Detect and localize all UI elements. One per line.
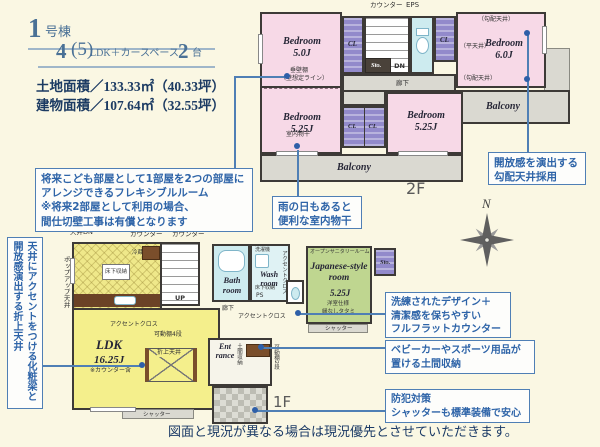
connector-counter-dot: [295, 310, 301, 316]
eps-label: EPS: [406, 2, 419, 10]
connector-drying-dot: [294, 143, 300, 149]
storage-2f: Sto.: [365, 58, 391, 73]
roof-outline: [544, 48, 570, 92]
callout-indoor-drying: 雨の日もあると 便利な室内物干: [272, 196, 362, 229]
toilet-icon: [416, 28, 429, 36]
window-1f-left: [70, 258, 75, 284]
callout-doma-storage: ベビーカーやスポーツ用品が 置ける土間収納: [385, 340, 535, 374]
counter-label-2f: カウンター: [370, 2, 403, 9]
compass-icon: N: [452, 192, 522, 272]
window-1f-bottom: [90, 407, 136, 412]
wash-room: 洗濯機 Wash room 床下収納 PS アクセントクロス: [250, 244, 290, 302]
ps-label: PS: [256, 293, 263, 300]
shutter-label-2: シャッター: [325, 326, 353, 332]
toilet-bowl-icon: [416, 37, 429, 54]
toilet-room-2f: [410, 16, 434, 74]
wall-assumption-line: [264, 88, 338, 89]
ldk-name: LDK: [96, 338, 122, 353]
folded-ceiling-box: 折上天井: [145, 348, 197, 382]
hallway-2f-ext: [342, 92, 386, 106]
shelf2-label: 可動棚2段: [273, 344, 279, 378]
japanese-room-size: 5.25J: [330, 288, 350, 298]
connector-drying-v: [297, 150, 299, 196]
balcony-right-label: Balcony: [486, 101, 520, 113]
connector-flexible-dot: [284, 73, 290, 79]
compass-n-label: N: [481, 196, 492, 211]
connector-doma-h: [261, 347, 386, 349]
hallway-1f-label: 廊下: [222, 306, 234, 313]
laundry-label: 洗濯機: [255, 248, 270, 254]
balcony-bottom-label: Balcony: [337, 162, 371, 174]
under-floor-storage-label: 床下収納: [105, 269, 127, 275]
bath-room: Bath room: [212, 244, 250, 302]
doma-storage-label: 土間収納: [236, 343, 242, 373]
connector-flexible-h: [234, 76, 288, 78]
plan-text: LDK＋カースペース: [90, 48, 179, 59]
washing-machine-icon: [255, 254, 269, 268]
closet-cl-a: CL: [342, 16, 364, 74]
floor1-plan: ポップアップ天井 冷蔵庫 床下収納 アクセントクロス LDK 16.25J ※カ…: [62, 240, 406, 432]
connector-sloped-dot-a: [524, 30, 530, 36]
shelf4-label: 可動棚4段: [154, 332, 182, 339]
callout-folded-ceiling: 天井にアクセントをつける化粧梁と 開放感演出する折上天井: [7, 237, 43, 409]
connector-sloped-dot-b: [524, 76, 530, 82]
jp-spec1-label: 洋室仕様: [327, 301, 349, 307]
closet-cl-c: CL: [344, 108, 365, 146]
connector-folded-h: [40, 365, 142, 367]
flat-ceiling-label: （平天井）: [460, 44, 490, 51]
stairs-dn-label: DN: [394, 63, 405, 70]
closet-cl-pair: CL CL: [342, 106, 386, 148]
connector-security-h: [255, 410, 386, 412]
bedroom-5-0j-name: Bedroom5.0J: [272, 36, 332, 59]
entrance-label: Ent rance: [212, 342, 238, 360]
hanging-wall-label: 垂壁棚: [290, 68, 308, 75]
stairs-1f: UP: [160, 242, 200, 306]
connector-doma-dot: [258, 344, 264, 350]
closet-cl-b: CL: [434, 16, 456, 62]
sloped-ceiling-label-bottom: （勾配天井）: [460, 76, 496, 83]
building-suffix: 号棟: [45, 25, 71, 39]
closet-cl-d-label: CL: [369, 123, 377, 130]
window-2f-right: [542, 26, 547, 54]
callout-security-shutter: 防犯対策 シャッターも標準装備で安心: [385, 389, 530, 423]
connector-counter-h: [298, 313, 386, 315]
accent-cloth2-label: アクセントクロス: [238, 314, 286, 321]
closet-cl-a-label: CL: [348, 40, 357, 48]
storage-1f: Sto.: [374, 248, 396, 276]
closet-cl-b-label: CL: [440, 36, 449, 44]
connector-security-dot: [252, 407, 258, 413]
connector-folded-dot: [139, 362, 145, 368]
toilet-1f-icon: [291, 287, 300, 300]
counter-label-1: カウンター: [130, 231, 163, 238]
toilet-room-1f: [286, 280, 304, 304]
plan-number-2: 2: [178, 40, 189, 63]
indoor-drying-label: 室内物干: [286, 132, 310, 139]
header-block: 1 号棟 4 (5) LDK＋カースペース 2 台 土地面積／133.33㎡（4…: [28, 12, 248, 122]
bath-room-label: Bath room: [218, 276, 246, 296]
connector-flexible-v: [234, 76, 236, 170]
callout-flexible-room: 将来こども部屋として1部屋を2つの部屋に アレンジできるフレキシブルルーム ※将…: [35, 168, 253, 232]
balcony-bottom: Balcony: [260, 154, 463, 182]
callout-flat-counter: 洗練されたデザイン＋ 清潔感を保ちやすい フルフラットカウンター: [385, 292, 511, 338]
shutter-band-2: シャッター: [308, 324, 368, 333]
header-rule-2: [38, 66, 215, 68]
plan-suffix: 台: [192, 48, 202, 59]
storage-1f-label: Sto.: [380, 259, 390, 266]
window-2f-left: [258, 34, 263, 64]
under-floor-storage: 床下収納: [102, 264, 130, 280]
disclaimer-text: 図面と現況が異なる場合は現況優先とさせていただきます。: [168, 426, 518, 440]
popup-ceiling-label: ポップアップ天井: [62, 256, 69, 340]
bedroom-5-25j-right-name: Bedroom5.25J: [396, 110, 456, 133]
entrance-tile: [212, 386, 268, 424]
hallway-2f-label: 廊下: [396, 80, 409, 87]
plan-number: 4: [56, 40, 67, 63]
ldk-note: ※カウンター含: [90, 368, 131, 375]
floorplan-flyer: 1 号棟 4 (5) LDK＋カースペース 2 台 土地面積／133.33㎡（4…: [0, 0, 600, 447]
window-2f-bottom-b: [398, 151, 448, 156]
counter-label-2: カウンター: [172, 231, 205, 238]
folded-ceiling-box-label: 折上天井: [157, 350, 181, 357]
kitchen-sink-icon: [114, 296, 136, 305]
bedroom-5-25j-left: Bedroom5.25J: [260, 86, 342, 154]
floor-storage2-label: 床下収納: [255, 286, 275, 292]
closet-cl-d: CL: [365, 108, 385, 146]
shutter-label-1: シャッター: [143, 412, 171, 418]
bathtub-icon: [218, 250, 245, 272]
storage-2f-label: Sto.: [371, 62, 381, 69]
callout-sloped-ceiling: 開放感を演出する 勾配天井採用: [488, 152, 586, 185]
open-sanitary-label: オープンサニタリールーム: [310, 250, 370, 256]
floor2-label: 2F: [406, 180, 425, 198]
hallway-2f: 廊下: [342, 74, 456, 92]
bedroom-6-0j: （勾配天井） Bedroom6.0J （平天井） （勾配天井）: [456, 12, 546, 88]
closet-cl-c-label: CL: [348, 123, 356, 130]
building-number: 1: [28, 14, 42, 44]
land-area-text: 土地面積／133.33㎡（40.33坪）: [36, 80, 225, 95]
pantry-closet: [142, 246, 160, 260]
stairs-up-label: UP: [175, 295, 185, 302]
kitchen-counter: [74, 294, 160, 307]
building-area-text: 建物面積／107.64㎡（32.55坪）: [36, 99, 225, 114]
japanese-room-name: Japanese-style room: [310, 262, 368, 284]
accent-cloth-label: アクセントクロス: [110, 322, 158, 329]
connector-sloped-v: [527, 33, 529, 153]
floor1-label: 1F: [273, 394, 291, 411]
bedroom-5-25j-right: Bedroom5.25J: [386, 92, 463, 154]
sloped-ceiling-label-top: （勾配天井）: [478, 17, 514, 24]
balcony-right: Balcony: [456, 90, 570, 124]
